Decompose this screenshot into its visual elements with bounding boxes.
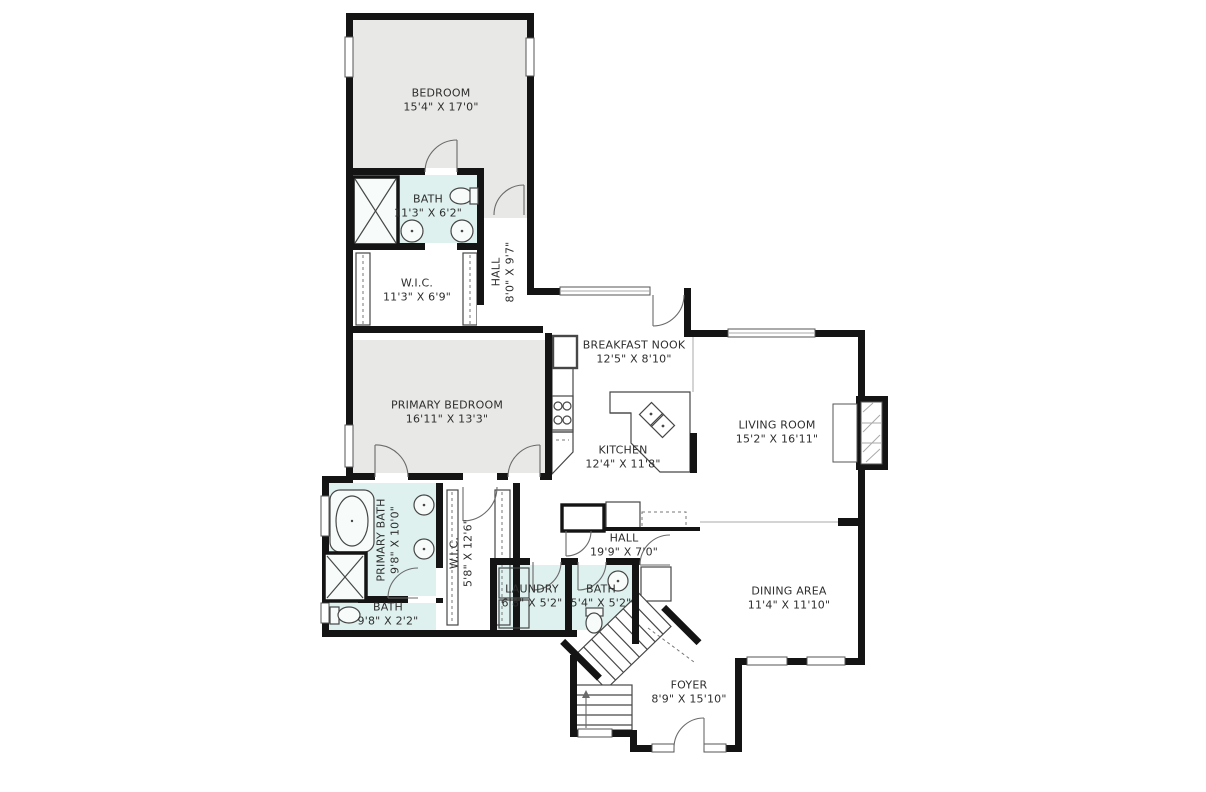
room-name: PRIMARY BEDROOM: [391, 399, 503, 412]
room-label-kitchen: KITCHEN 12'4" X 11'8": [585, 444, 660, 471]
room-label-dining-area: DINING AREA 11'4" X 11'10": [748, 585, 831, 612]
room-dims: 11'3" X 6'2": [394, 207, 462, 220]
room-dims: 11'3" X 6'9": [383, 291, 451, 304]
room-name: BATH: [413, 193, 443, 206]
room-dims: 5'4" X 5'2": [571, 597, 632, 610]
room-name: LAUNDRY: [505, 583, 559, 596]
bedroom-floor-extension: [484, 168, 527, 218]
room-label-wic-lower: W.I.C. 5'8" X 12'6": [448, 519, 475, 587]
room-label-hall-upper: HALL 8'0" X 9'7": [490, 242, 517, 303]
floor-plan-image: BEDROOM 15'4" X 17'0" BATH 11'3" X 6'2" …: [0, 0, 1206, 792]
room-name: W.I.C.: [448, 537, 461, 569]
hall-closet: [562, 505, 604, 531]
room-dims: 12'5" X 8'10": [596, 353, 671, 366]
room-dims: 11'4" X 11'10": [748, 599, 831, 612]
room-name: BATH: [586, 583, 616, 596]
room-dims: 12'4" X 11'8": [585, 458, 660, 471]
room-label-laundry: LAUNDRY 6'8" X 5'2": [502, 583, 563, 610]
room-name: BEDROOM: [412, 87, 471, 100]
room-dims: 19'9" X 7'0": [590, 546, 658, 559]
hall-counter-dashed: [642, 512, 686, 529]
fireplace-hearth: [833, 404, 857, 462]
room-label-bath-mid: BATH 5'4" X 5'2": [571, 583, 632, 610]
room-name: HALL: [610, 532, 639, 545]
toilet-mid: [586, 613, 602, 633]
room-name: HALL: [490, 258, 503, 287]
room-label-primary-bedroom: PRIMARY BEDROOM 16'11" X 13'3": [391, 399, 503, 426]
stair-closet: [641, 567, 671, 601]
room-dims: 15'2" X 16'11": [736, 433, 819, 446]
room-name: FOYER: [671, 679, 708, 692]
room-name: BREAKFAST NOOK: [583, 339, 685, 352]
room-name: PRIMARY BATH: [375, 498, 388, 581]
room-name: DINING AREA: [751, 585, 826, 598]
room-name: W.I.C.: [401, 277, 433, 290]
stair-lower-run: [572, 685, 632, 730]
room-label-bedroom: BEDROOM 15'4" X 17'0": [403, 87, 478, 114]
room-dims: 6'8" X 5'2": [502, 597, 563, 610]
room-dims: 5'8" X 12'6": [462, 519, 475, 587]
room-dims: 16'11" X 13'3": [406, 413, 489, 426]
room-name: KITCHEN: [598, 444, 647, 457]
room-label-primary-bath: PRIMARY BATH 9'8" X 10'0": [375, 498, 402, 581]
room-label-wic-upper: W.I.C. 11'3" X 6'9": [383, 277, 451, 304]
refrigerator: [553, 336, 577, 368]
room-label-bath-upper: BATH 11'3" X 6'2": [394, 193, 462, 220]
cooktop: [552, 396, 573, 430]
room-dims: 9'8" X 2'2": [358, 615, 419, 628]
room-dims: 8'9" X 15'10": [651, 693, 726, 706]
room-name: BATH: [373, 601, 403, 614]
room-name: LIVING ROOM: [738, 419, 815, 432]
floor-plan-drawing: [0, 0, 1206, 792]
fireplace: [833, 396, 888, 470]
room-dims: 8'0" X 9'7": [504, 242, 517, 303]
room-label-hall-lower: HALL 19'9" X 7'0": [590, 532, 658, 559]
room-label-foyer: FOYER 8'9" X 15'10": [651, 679, 726, 706]
hall-cabinet: [606, 502, 640, 530]
kitchen-counter-angled: [552, 432, 573, 474]
kitchen-wall-stub: [690, 433, 697, 473]
room-label-living-room: LIVING ROOM 15'2" X 16'11": [736, 419, 819, 446]
room-label-breakfast-nook: BREAKFAST NOOK 12'5" X 8'10": [583, 339, 685, 366]
room-dims: 9'8" X 10'0": [389, 506, 402, 574]
room-dims: 15'4" X 17'0": [403, 101, 478, 114]
room-label-bath-lower: BATH 9'8" X 2'2": [358, 601, 419, 628]
